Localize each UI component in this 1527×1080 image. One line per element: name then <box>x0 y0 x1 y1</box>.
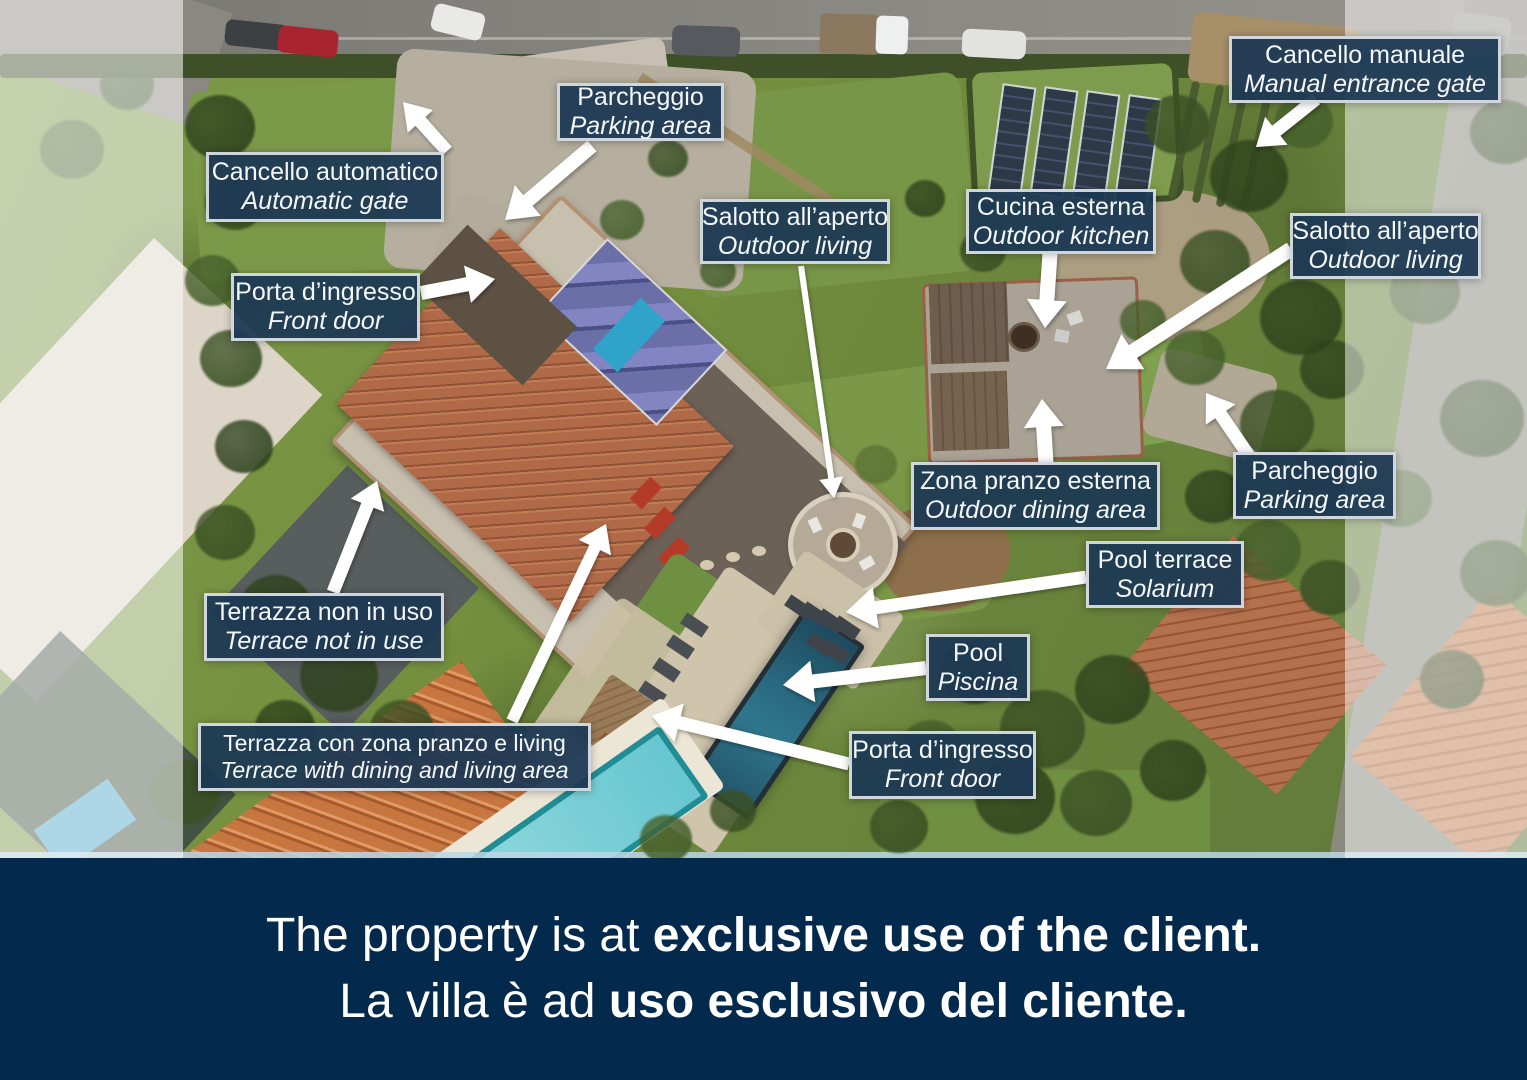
tree <box>1235 520 1301 581</box>
label-pool-terrace: Pool terrace Solarium <box>1086 541 1244 608</box>
stone-step <box>726 552 740 562</box>
footer-text-regular: La villa è ad <box>339 975 609 1028</box>
pergola-fire-table <box>1008 322 1040 352</box>
fire-pit <box>826 528 860 562</box>
label-line-secondary: Terrace with dining and living area <box>220 757 568 784</box>
label-manual-gate: Cancello manuale Manual entrance gate <box>1229 36 1501 103</box>
truck-cab <box>875 15 908 54</box>
tree <box>1060 770 1132 836</box>
label-line-secondary: Piscina <box>938 668 1019 697</box>
label-line-primary: Salotto all’aperto <box>1292 217 1478 246</box>
truck-bed <box>819 13 878 55</box>
tree <box>1075 655 1150 724</box>
label-line-secondary: Terrace not in use <box>224 627 423 656</box>
label-line-primary: Parcheggio <box>577 83 703 112</box>
tree <box>1420 650 1484 709</box>
tree <box>1120 300 1166 342</box>
label-automatic-gate: Cancello automatico Automatic gate <box>206 152 444 222</box>
label-front-door-house: Porta d’ingresso Front door <box>231 273 420 341</box>
tree <box>100 60 154 110</box>
label-line-primary: Cucina esterna <box>977 193 1145 222</box>
label-line-secondary: Outdoor kitchen <box>973 222 1150 251</box>
tree <box>870 800 928 853</box>
tree <box>1460 540 1527 606</box>
tree <box>640 815 692 858</box>
footer-text-bold: uso esclusivo del cliente. <box>609 975 1188 1028</box>
tree <box>648 140 688 177</box>
pergola-roof <box>929 282 1010 365</box>
label-line-primary: Cancello automatico <box>212 158 439 187</box>
label-line-secondary: Manual entrance gate <box>1244 70 1486 99</box>
label-line-secondary: Parking area <box>1244 486 1386 515</box>
stone-step <box>752 546 766 556</box>
label-line-secondary: Front door <box>268 307 383 336</box>
label-line-primary: Pool <box>953 639 1003 668</box>
label-line-primary: Terrazza con zona pranzo e living <box>223 730 566 757</box>
label-line-secondary: Automatic gate <box>242 187 409 216</box>
label-outdoor-dining: Zona pranzo esterna Outdoor dining area <box>911 462 1160 530</box>
label-line-primary: Salotto all’aperto <box>702 203 888 232</box>
outdoor-seating <box>1054 329 1070 343</box>
footer-line-italian: La villa è ad uso esclusivo del cliente. <box>339 969 1187 1035</box>
label-parking-right: Parcheggio Parking area <box>1233 452 1396 519</box>
label-line-secondary: Outdoor living <box>1308 246 1462 275</box>
property-infographic: Parcheggio Parking area Cancello manuale… <box>0 0 1527 1080</box>
label-terrace-dining: Terrazza con zona pranzo e living Terrac… <box>198 723 591 791</box>
tree <box>1300 340 1364 399</box>
label-outdoor-living-right: Salotto all’aperto Outdoor living <box>1290 213 1481 279</box>
tree <box>855 445 897 484</box>
label-line-secondary: Outdoor living <box>718 232 872 261</box>
tree <box>600 200 644 240</box>
tree <box>40 120 104 179</box>
label-front-door-pool: Porta d’ingresso Front door <box>849 731 1036 799</box>
label-parking-top: Parcheggio Parking area <box>557 83 724 141</box>
label-terrace-not-in-use: Terrazza non in uso Terrace not in use <box>204 593 444 661</box>
tree <box>1140 740 1206 801</box>
parked-car-gray <box>671 25 740 57</box>
tree <box>1240 390 1314 458</box>
label-line-primary: Zona pranzo esterna <box>920 467 1151 496</box>
tree <box>905 180 945 217</box>
label-line-secondary: Solarium <box>1116 575 1215 604</box>
parked-car-white <box>961 28 1026 59</box>
label-line-primary: Cancello manuale <box>1265 41 1465 70</box>
tree <box>1300 560 1360 615</box>
label-line-secondary: Parking area <box>570 112 712 141</box>
tree <box>1210 140 1288 212</box>
label-line-primary: Porta d’ingresso <box>235 278 416 307</box>
tree <box>195 505 255 560</box>
footer-text-bold: exclusive use of the client. <box>653 909 1261 962</box>
tree <box>1145 95 1209 154</box>
label-outdoor-living-left: Salotto all’aperto Outdoor living <box>700 199 890 264</box>
tree <box>710 790 756 832</box>
tree <box>185 95 255 159</box>
footer-text-regular: The property is at <box>266 909 653 962</box>
tree <box>1180 230 1250 294</box>
label-line-primary: Porta d’ingresso <box>852 736 1033 765</box>
label-outdoor-kitchen: Cucina esterna Outdoor kitchen <box>966 189 1156 254</box>
footer-banner: The property is at exclusive use of the … <box>0 858 1527 1080</box>
tree <box>1440 380 1524 457</box>
label-line-secondary: Outdoor dining area <box>925 496 1146 525</box>
pergola-roof <box>931 371 1010 452</box>
tree <box>1165 330 1225 385</box>
footer-line-english: The property is at exclusive use of the … <box>266 903 1261 969</box>
label-line-primary: Pool terrace <box>1098 546 1233 575</box>
label-pool: Pool Piscina <box>926 634 1030 701</box>
tree <box>215 420 273 473</box>
label-line-secondary: Front door <box>885 765 1000 794</box>
label-line-primary: Parcheggio <box>1251 457 1377 486</box>
label-line-primary: Terrazza non in uso <box>215 598 433 627</box>
